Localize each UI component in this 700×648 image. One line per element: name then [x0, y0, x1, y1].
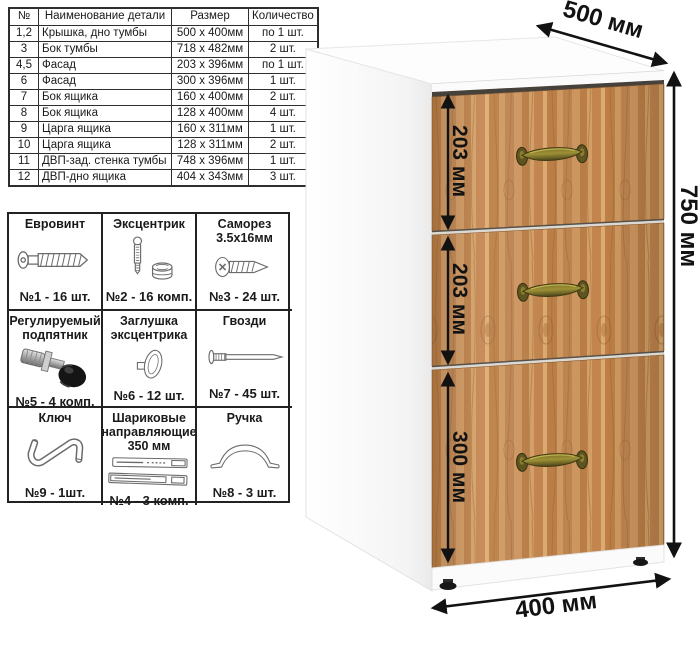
cabinet-side-panel [306, 49, 432, 591]
width-label: 500 мм [560, 0, 646, 44]
cabinet-illustration: 500 мм 750 мм 400 мм 203 мм 203 мм 300 м… [0, 0, 700, 648]
height-dimension: 750 мм [674, 73, 700, 556]
height-label: 750 мм [675, 185, 700, 267]
depth-label: 400 мм [514, 587, 599, 624]
assembly-instruction-sheet: №Наименование деталиРазмерКоличество1,2К… [0, 0, 700, 648]
cabinet-body [306, 37, 664, 591]
drawer1-height-label: 203 мм [448, 125, 471, 197]
drawer2-height-label: 203 мм [448, 263, 471, 335]
drawer3-height-label: 300 мм [448, 431, 471, 503]
